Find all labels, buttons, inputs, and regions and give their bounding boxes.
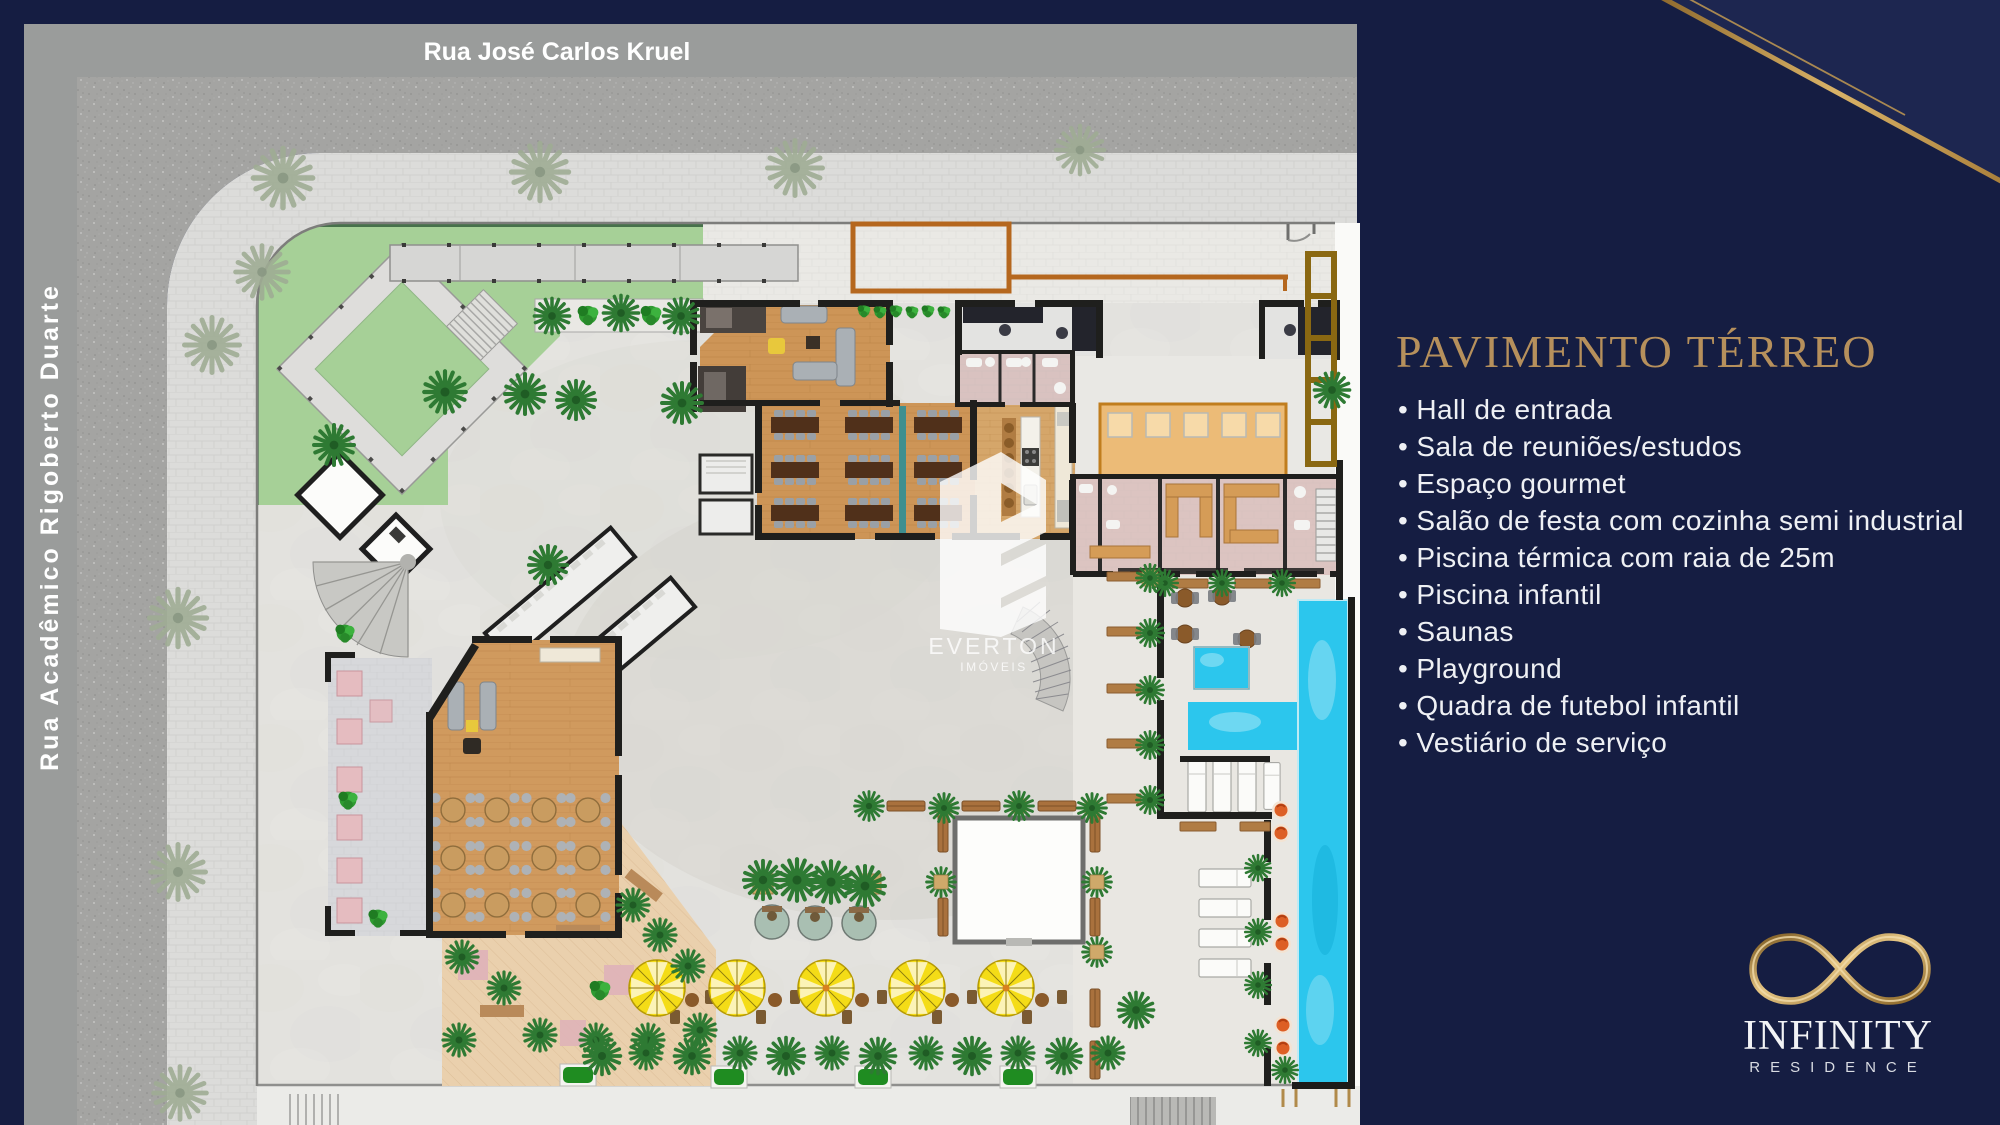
svg-text:IMÓVEIS: IMÓVEIS — [960, 659, 1028, 674]
svg-text:• Hall de entrada: • Hall de entrada — [1398, 394, 1612, 425]
svg-text:• Sala de reuniões/estudos: • Sala de reuniões/estudos — [1398, 431, 1742, 462]
svg-text:• Quadra de futebol infantil: • Quadra de futebol infantil — [1398, 690, 1740, 721]
svg-text:• Saunas: • Saunas — [1398, 616, 1514, 647]
svg-text:PAVIMENTO TÉRREO: PAVIMENTO TÉRREO — [1396, 326, 1877, 377]
svg-text:• Playground: • Playground — [1398, 653, 1562, 684]
svg-text:Rua Acadêmico Rigoberto Duarte: Rua Acadêmico Rigoberto Duarte — [36, 283, 64, 771]
svg-text:• Espaço gourmet: • Espaço gourmet — [1398, 468, 1626, 499]
svg-text:INFINITY: INFINITY — [1743, 1013, 1933, 1059]
svg-text:Rua José Carlos Kruel: Rua José Carlos Kruel — [424, 38, 691, 66]
svg-text:• Vestiário de serviço: • Vestiário de serviço — [1398, 727, 1667, 758]
svg-text:RESIDENCE: RESIDENCE — [1749, 1059, 1927, 1076]
svg-text:• Piscina térmica com raia de: • Piscina térmica com raia de 25m — [1398, 542, 1835, 573]
svg-text:• Salão de festa com cozinha s: • Salão de festa com cozinha semi indust… — [1398, 505, 1964, 536]
svg-text:• Piscina infantil: • Piscina infantil — [1398, 579, 1602, 610]
svg-text:EVERTON: EVERTON — [928, 633, 1059, 659]
